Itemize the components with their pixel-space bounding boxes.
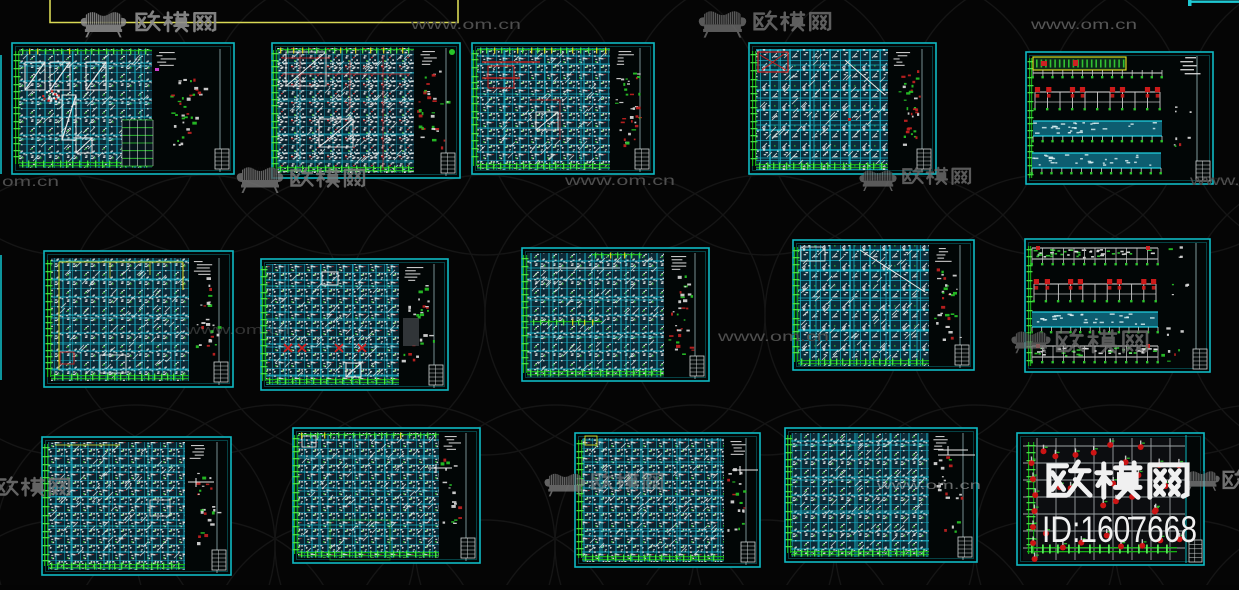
svg-text:www.om.cn: www.om.cn xyxy=(875,478,981,492)
svg-text:www.om.cn: www.om.cn xyxy=(563,172,675,188)
svg-text:www.om.cn: www.om.cn xyxy=(716,328,829,344)
svg-text:www.om.cn: www.om.cn xyxy=(1189,172,1239,188)
svg-text:www.om.cn: www.om.cn xyxy=(0,173,59,189)
svg-text:www.om.cn: www.om.cn xyxy=(184,322,290,337)
svg-text:www.om.cn: www.om.cn xyxy=(1030,16,1137,32)
svg-text:ID:1607668: ID:1607668 xyxy=(1042,509,1197,550)
svg-text:www.om.cn: www.om.cn xyxy=(409,16,521,32)
